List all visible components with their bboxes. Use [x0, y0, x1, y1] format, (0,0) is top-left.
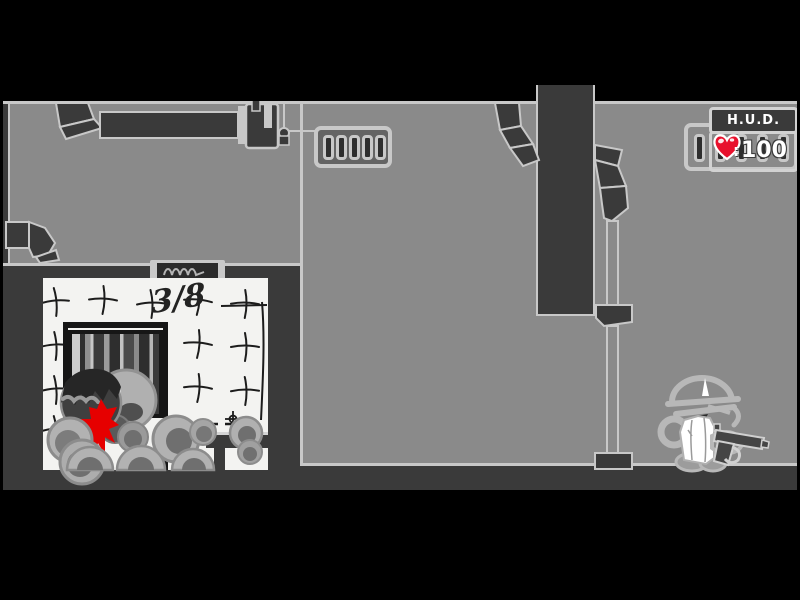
pillar-top-cap [536, 85, 595, 103]
pillar-duct-left [492, 100, 542, 172]
letterbox-left [0, 0, 3, 600]
pipe-base-plate [595, 453, 632, 469]
pipe-stub [279, 136, 289, 145]
health-value: 100 [741, 138, 787, 163]
duct-junction-box [246, 104, 278, 148]
hud-title-label: H.U.D. [727, 113, 780, 128]
vent-slot [375, 135, 386, 160]
letterbox-bottom [0, 490, 800, 600]
door-frame-top [63, 322, 168, 328]
tile-cross [231, 333, 259, 361]
vent-slot [323, 135, 334, 160]
enemy-vest [680, 416, 714, 464]
corpse-face [243, 447, 257, 461]
standpipe-upper [607, 221, 618, 305]
vent-slot [694, 134, 705, 162]
helmet-brim [668, 399, 738, 404]
game-stage[interactable]: H.U.D. : 100 [0, 0, 800, 600]
enemy-character[interactable] [648, 362, 778, 474]
vent-slot [362, 135, 373, 160]
duct-segment [595, 160, 626, 188]
pipe-up-light [264, 98, 272, 128]
tile-cross [89, 286, 118, 315]
ceiling-duct [50, 95, 320, 155]
duct-segment [6, 222, 29, 248]
wall-corner-line [300, 104, 303, 466]
duct-segment [510, 144, 539, 166]
pipe-bracket [596, 305, 632, 326]
wall-duct-elbow [3, 215, 65, 265]
duct-horizontal [100, 112, 238, 138]
tile-cross [43, 287, 70, 317]
hud-panel-title: H.U.D. [709, 107, 798, 134]
wrap-tail [734, 408, 739, 425]
hud-separator: : [733, 141, 739, 160]
body-pile [43, 363, 268, 473]
pillar-duct-right [590, 100, 640, 472]
vent-slot [336, 135, 347, 160]
white-cell-room: 3/8 [43, 278, 268, 470]
letterbox-top [0, 0, 800, 101]
squiggle-path [164, 269, 204, 275]
tile-cross [183, 329, 213, 359]
pistol-icon [714, 424, 769, 465]
standpipe-lower [607, 326, 618, 453]
vent-slot [349, 135, 360, 160]
duct-segment [600, 186, 628, 221]
vent-grill-icon [314, 126, 392, 168]
pillar-wall [536, 85, 595, 316]
corpse-face [196, 426, 212, 442]
pistol-muzzle [761, 440, 769, 448]
